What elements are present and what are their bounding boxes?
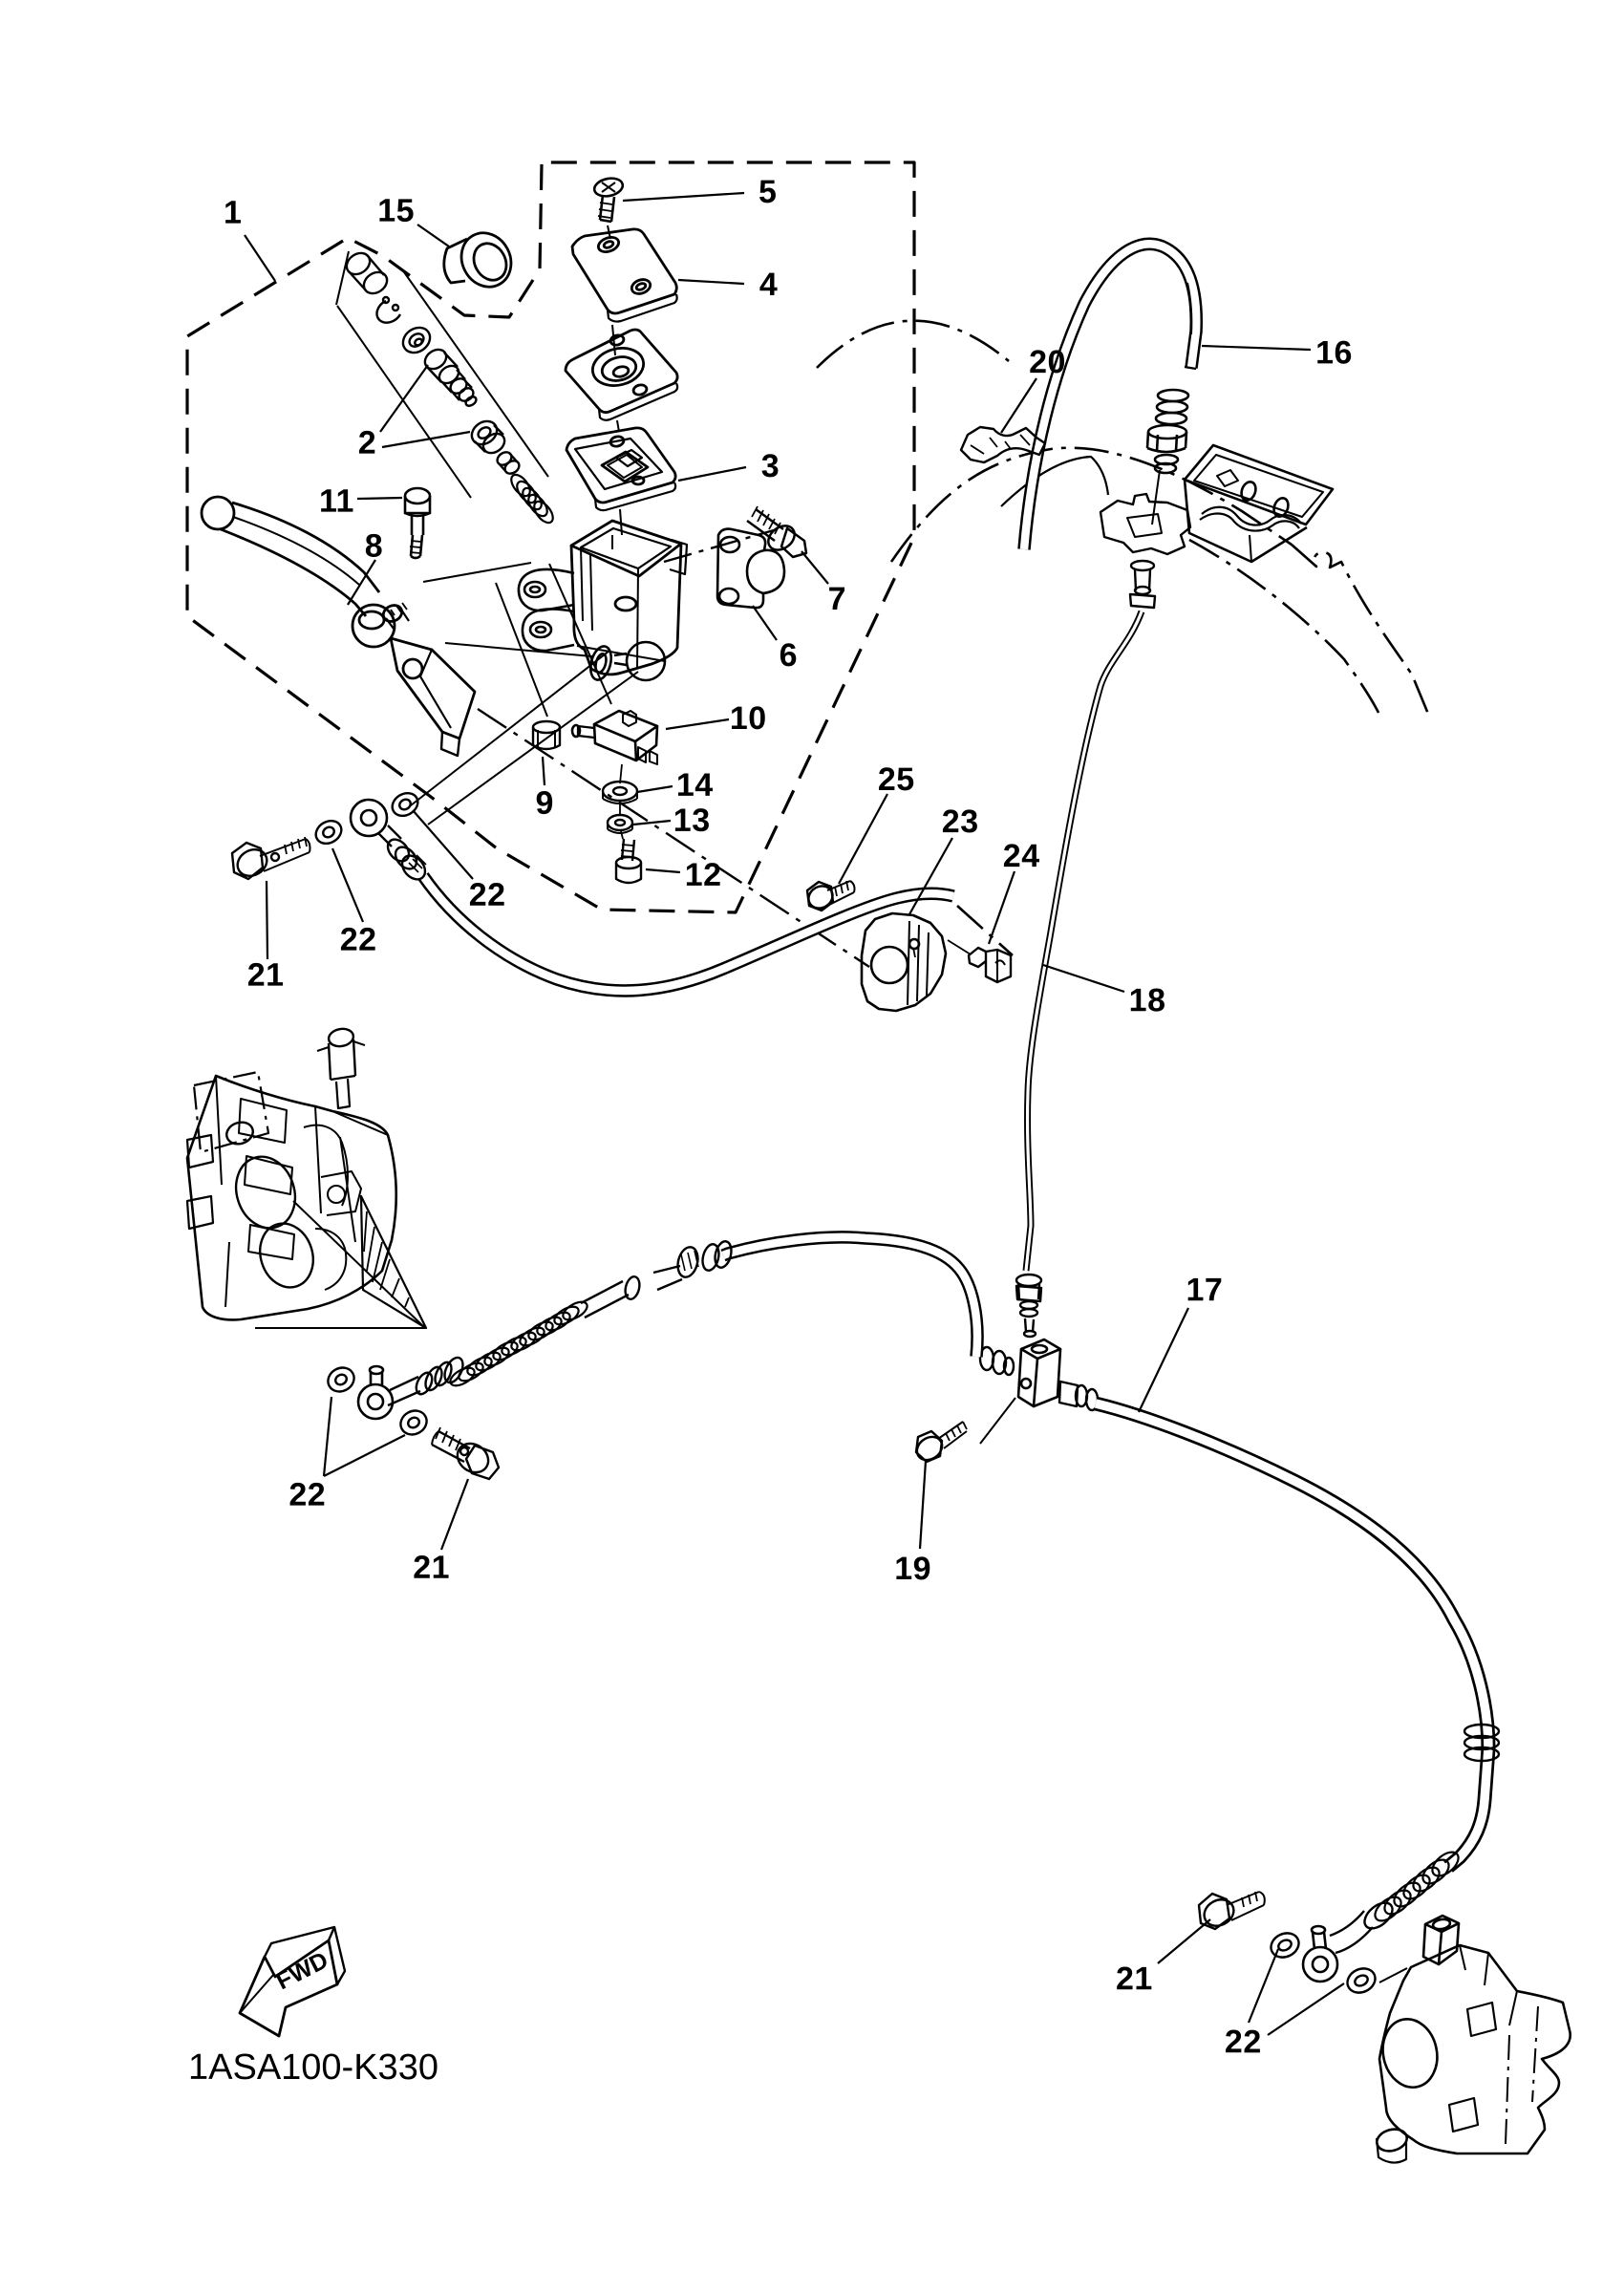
svg-text:18: 18	[1129, 982, 1166, 1018]
svg-text:2: 2	[358, 425, 376, 461]
svg-text:22: 22	[1225, 2024, 1262, 2060]
svg-text:13: 13	[673, 803, 711, 839]
svg-text:14: 14	[676, 767, 714, 804]
svg-text:7: 7	[828, 581, 846, 617]
svg-text:25: 25	[878, 761, 915, 798]
svg-text:21: 21	[1116, 1961, 1153, 1997]
svg-text:23: 23	[942, 804, 979, 840]
svg-text:6: 6	[780, 637, 798, 674]
svg-text:4: 4	[759, 267, 778, 303]
svg-text:24: 24	[1003, 838, 1040, 874]
svg-text:20: 20	[1029, 344, 1066, 380]
svg-text:8: 8	[365, 528, 383, 565]
svg-text:1: 1	[224, 195, 242, 231]
svg-text:12: 12	[685, 857, 722, 893]
svg-text:5: 5	[759, 174, 777, 210]
svg-text:11: 11	[319, 483, 354, 520]
svg-text:17: 17	[1186, 1272, 1223, 1308]
svg-text:10: 10	[730, 700, 767, 737]
svg-text:15: 15	[377, 193, 415, 229]
svg-text:19: 19	[894, 1551, 931, 1587]
svg-text:22: 22	[288, 1477, 326, 1513]
svg-text:21: 21	[413, 1550, 450, 1586]
svg-text:16: 16	[1315, 334, 1353, 371]
svg-text:1ASA100-K330: 1ASA100-K330	[188, 2047, 438, 2088]
svg-text:22: 22	[340, 922, 377, 958]
svg-text:3: 3	[761, 448, 780, 484]
svg-text:22: 22	[469, 877, 506, 913]
svg-text:21: 21	[247, 957, 285, 994]
svg-text:9: 9	[536, 785, 554, 822]
